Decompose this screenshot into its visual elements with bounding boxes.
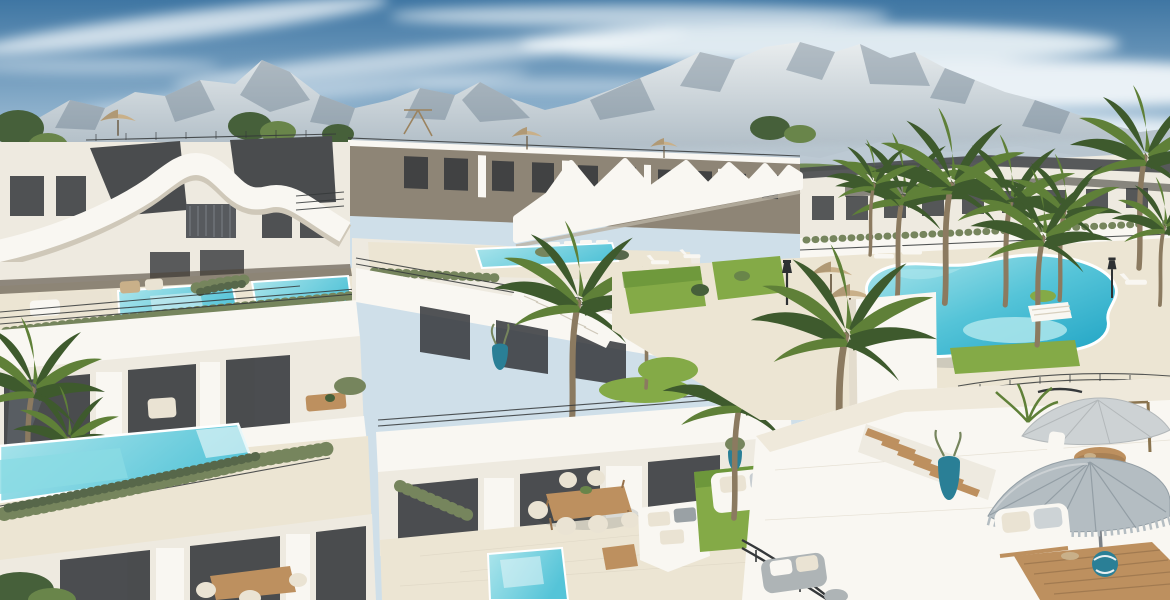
grass-circle — [638, 357, 698, 383]
pool-island — [1030, 290, 1056, 302]
left-building — [0, 130, 376, 600]
apartment-complex-render — [0, 0, 1170, 600]
dining-chair — [1046, 431, 1065, 457]
rendered-photo — [0, 0, 1170, 600]
louvre-strip — [186, 204, 236, 238]
